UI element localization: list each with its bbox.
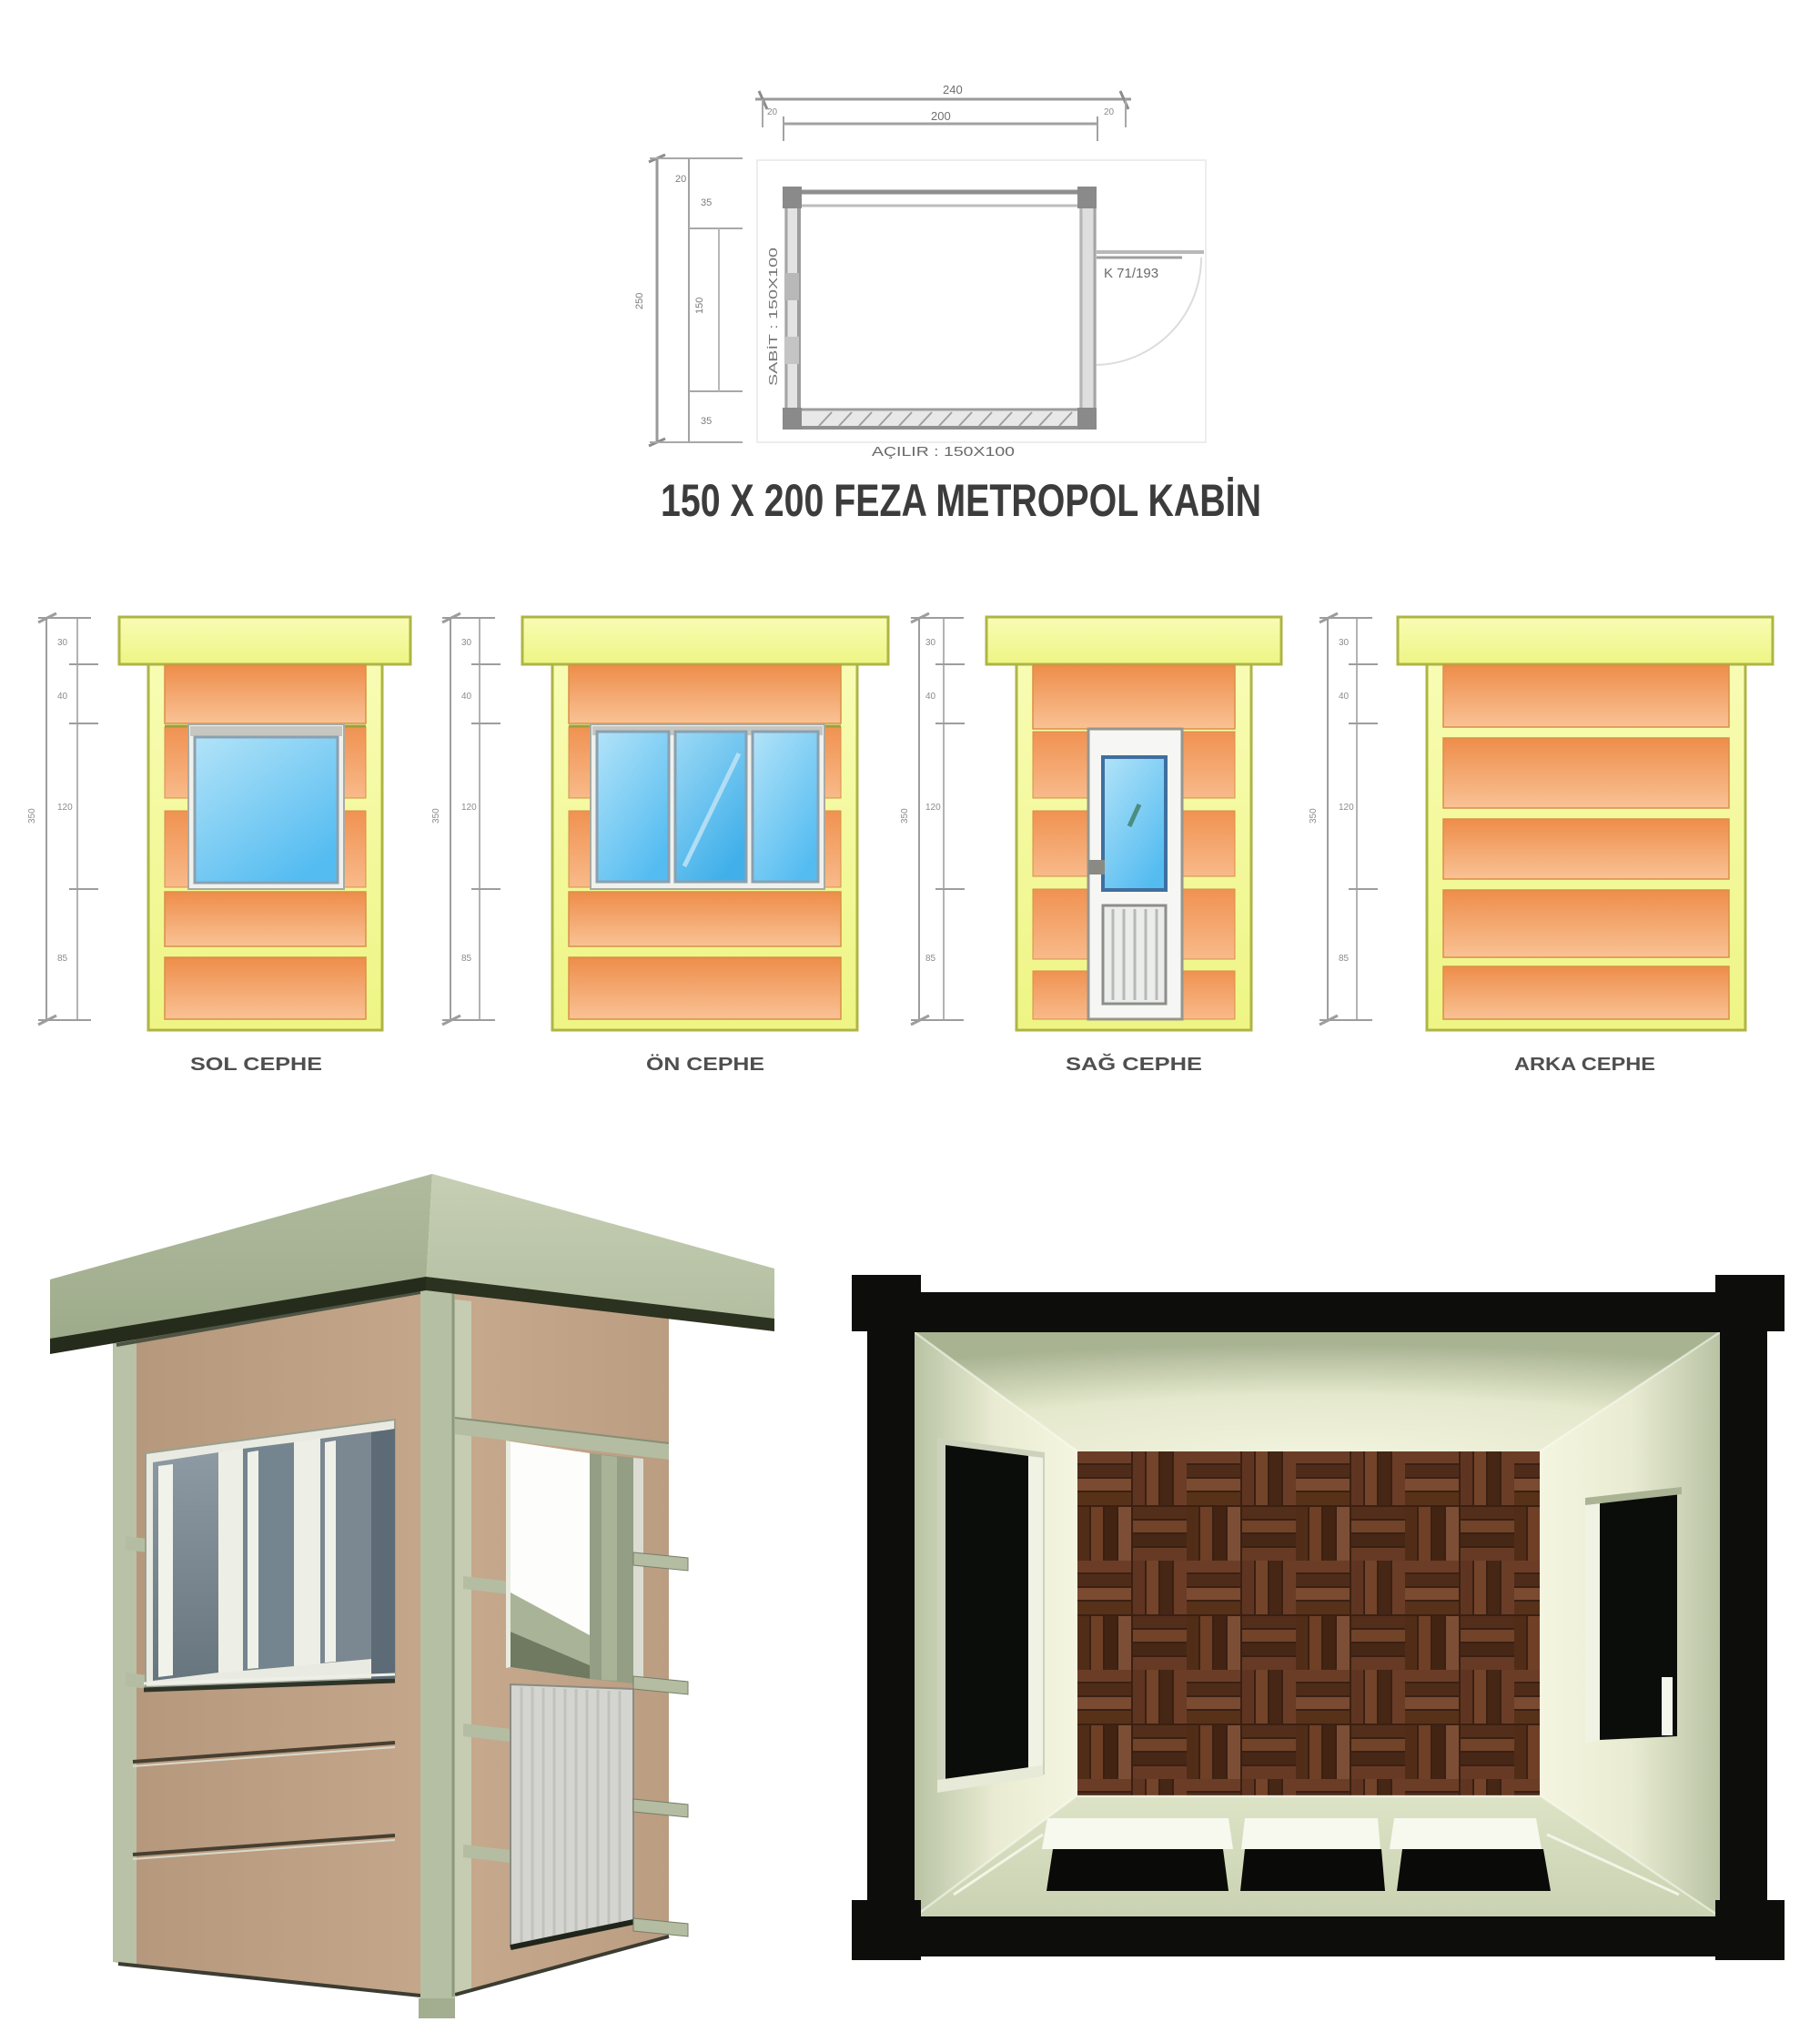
svg-text:120: 120 <box>461 803 477 813</box>
svg-text:20: 20 <box>767 107 778 117</box>
svg-text:ÖN CEPHE: ÖN CEPHE <box>646 1054 764 1075</box>
svg-text:30: 30 <box>461 638 472 648</box>
svg-text:120: 120 <box>57 803 73 813</box>
svg-text:30: 30 <box>925 638 936 648</box>
svg-text:350: 350 <box>431 808 441 824</box>
svg-text:30: 30 <box>57 638 68 648</box>
svg-text:120: 120 <box>925 803 941 813</box>
svg-text:SAĞ CEPHE: SAĞ CEPHE <box>1066 1053 1202 1075</box>
svg-text:40: 40 <box>57 692 68 702</box>
svg-text:150 X 200 FEZA METROPOL KABİN: 150 X 200 FEZA METROPOL KABİN <box>661 475 1261 526</box>
svg-text:85: 85 <box>1339 954 1350 964</box>
svg-text:AÇILIR : 150X100: AÇILIR : 150X100 <box>872 444 1015 460</box>
svg-text:250: 250 <box>634 293 645 309</box>
svg-text:K 71/193: K 71/193 <box>1104 266 1158 281</box>
svg-text:240: 240 <box>943 83 963 96</box>
svg-text:350: 350 <box>1309 808 1319 824</box>
svg-text:85: 85 <box>925 954 936 964</box>
svg-text:40: 40 <box>1339 692 1350 702</box>
svg-text:ARKA CEPHE: ARKA CEPHE <box>1514 1055 1655 1075</box>
svg-text:35: 35 <box>701 416 712 427</box>
svg-text:35: 35 <box>701 197 712 208</box>
svg-text:350: 350 <box>27 808 37 824</box>
svg-text:85: 85 <box>461 954 472 964</box>
svg-text:20: 20 <box>675 174 686 185</box>
svg-text:SABİT : 150X100: SABİT : 150X100 <box>766 248 780 386</box>
svg-text:200: 200 <box>931 109 951 123</box>
svg-text:40: 40 <box>461 692 472 702</box>
svg-text:SOL CEPHE: SOL CEPHE <box>190 1055 322 1075</box>
svg-text:150: 150 <box>694 298 705 314</box>
svg-text:30: 30 <box>1339 638 1350 648</box>
svg-text:120: 120 <box>1339 803 1354 813</box>
svg-text:85: 85 <box>57 954 68 964</box>
svg-text:40: 40 <box>925 692 936 702</box>
svg-text:350: 350 <box>900 808 910 824</box>
svg-text:20: 20 <box>1104 107 1115 117</box>
